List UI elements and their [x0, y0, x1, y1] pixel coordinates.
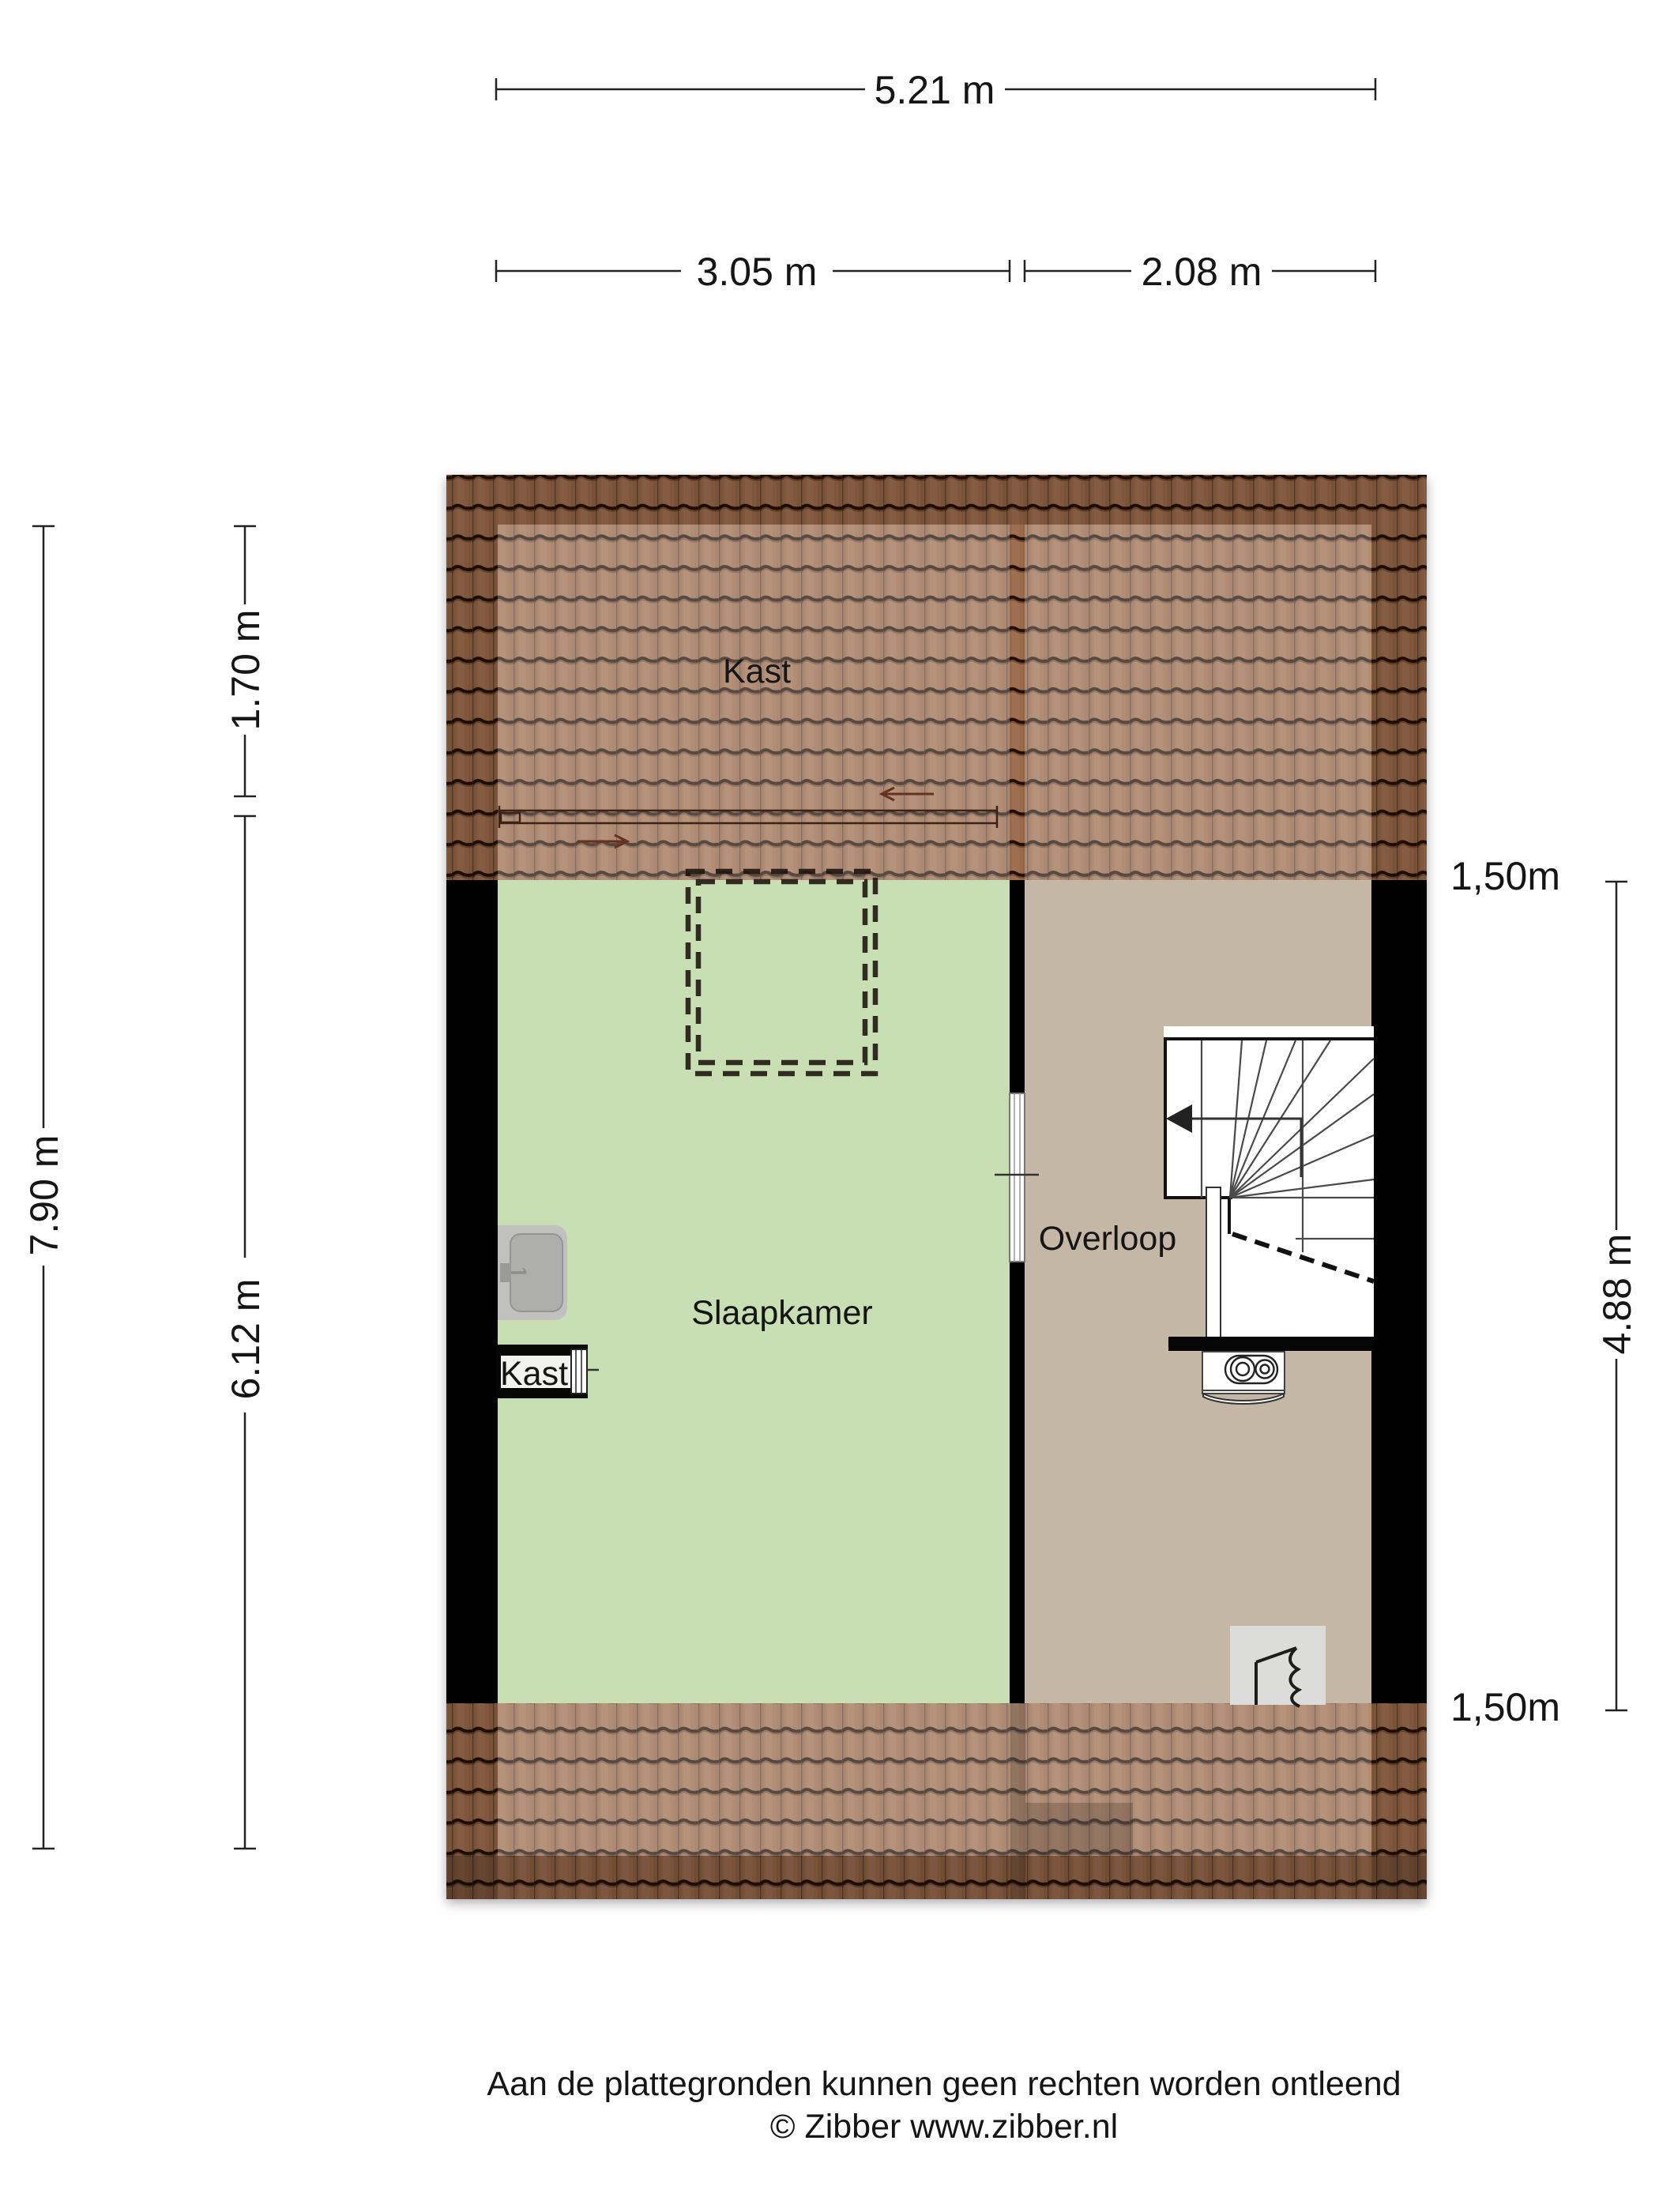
svg-text:Overloop: Overloop — [1039, 1220, 1176, 1258]
svg-text:© Zibber www.zibber.nl: © Zibber www.zibber.nl — [770, 2108, 1118, 2146]
svg-text:4.88 m: 4.88 m — [1595, 1234, 1639, 1355]
svg-text:6.12 m: 6.12 m — [224, 1279, 268, 1400]
svg-text:1,50m: 1,50m — [1450, 1685, 1560, 1729]
svg-text:7.90 m: 7.90 m — [22, 1135, 66, 1256]
svg-text:1.70 m: 1.70 m — [224, 610, 268, 731]
svg-text:3.05 m: 3.05 m — [697, 250, 818, 294]
svg-text:Aan de plattegronden kunnen ge: Aan de plattegronden kunnen geen rechten… — [487, 2065, 1401, 2103]
svg-text:2.08 m: 2.08 m — [1142, 250, 1262, 294]
svg-text:Kast: Kast — [500, 1355, 568, 1393]
svg-text:1,50m: 1,50m — [1450, 854, 1560, 898]
svg-text:Slaapkamer: Slaapkamer — [691, 1294, 872, 1332]
svg-text:Kast: Kast — [723, 653, 791, 690]
svg-text:5.21 m: 5.21 m — [875, 68, 995, 112]
